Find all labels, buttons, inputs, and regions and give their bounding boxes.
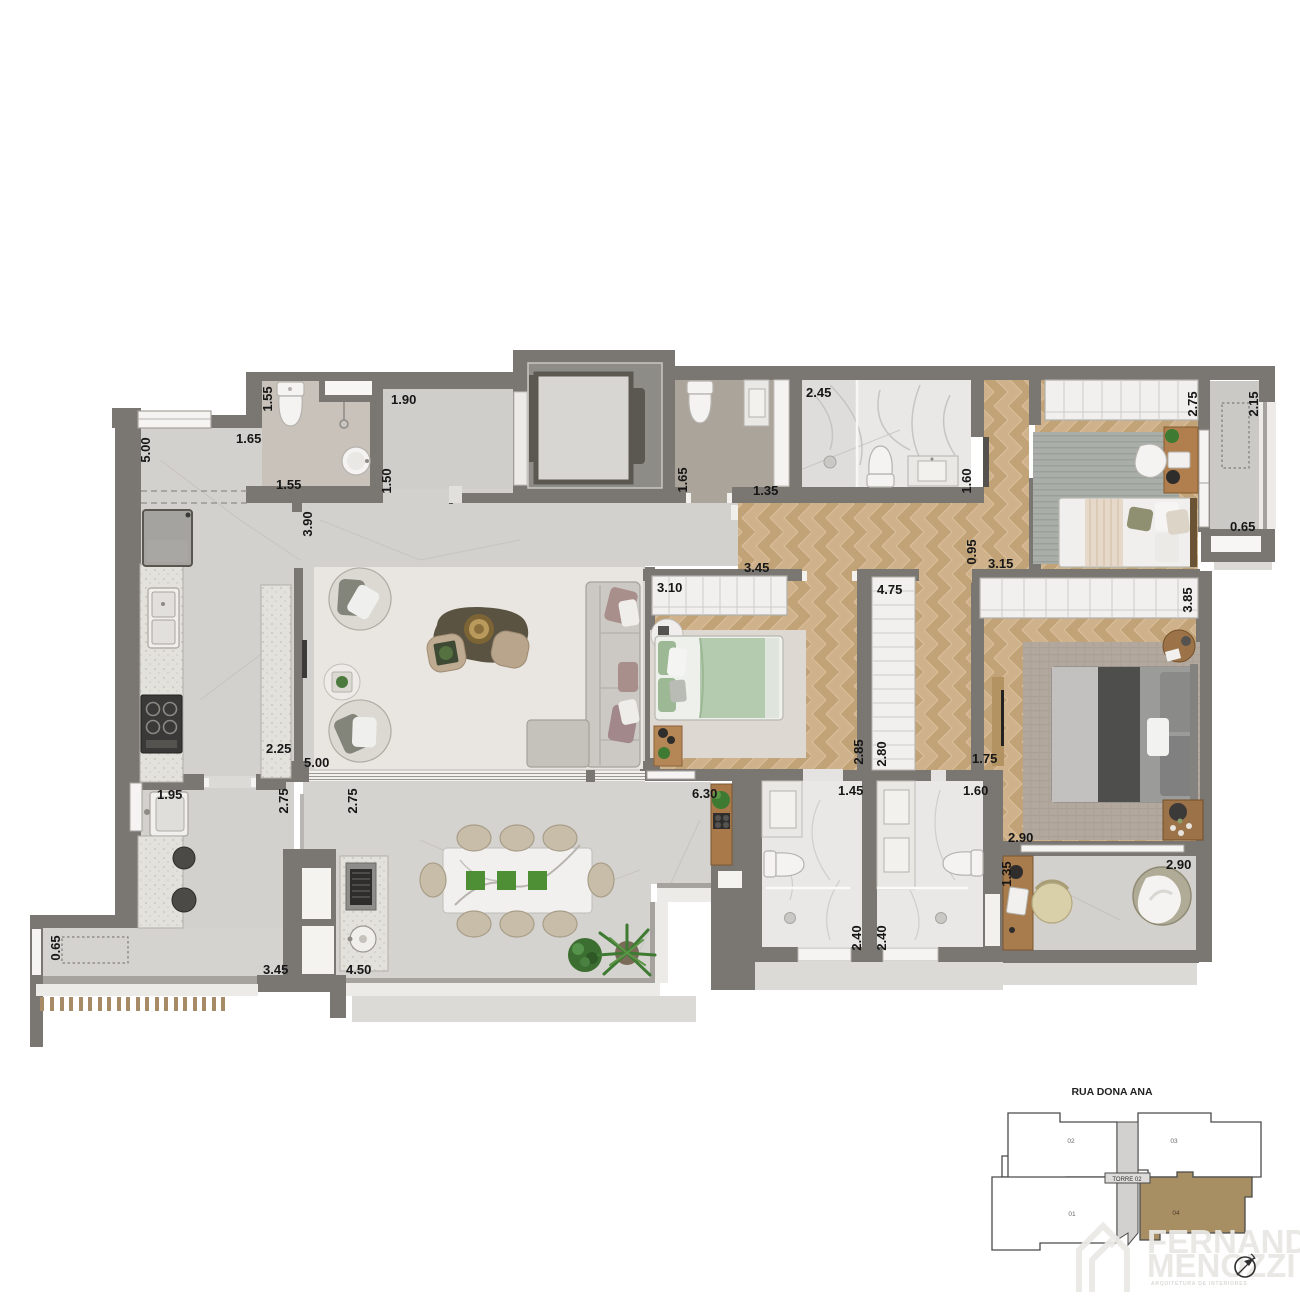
svg-text:0.95: 0.95 bbox=[964, 539, 979, 564]
svg-text:1.45: 1.45 bbox=[838, 783, 863, 798]
svg-text:RUA DONA ANA: RUA DONA ANA bbox=[1071, 1086, 1152, 1098]
svg-text:3.10: 3.10 bbox=[657, 580, 682, 595]
svg-text:1.50: 1.50 bbox=[379, 468, 394, 493]
svg-text:MENOZZI: MENOZZI bbox=[1147, 1247, 1295, 1284]
svg-text:2.45: 2.45 bbox=[806, 385, 831, 400]
svg-text:04: 04 bbox=[1172, 1210, 1180, 1217]
svg-text:1.60: 1.60 bbox=[959, 468, 974, 493]
svg-text:1.55: 1.55 bbox=[260, 386, 275, 411]
svg-text:2.90: 2.90 bbox=[1166, 857, 1191, 872]
svg-text:4.50: 4.50 bbox=[346, 962, 371, 977]
svg-text:2.90: 2.90 bbox=[1008, 830, 1033, 845]
svg-text:02: 02 bbox=[1067, 1138, 1075, 1145]
svg-text:2.15: 2.15 bbox=[1246, 391, 1261, 416]
svg-text:2.40: 2.40 bbox=[874, 925, 889, 950]
svg-text:1.55: 1.55 bbox=[276, 477, 301, 492]
svg-text:2.75: 2.75 bbox=[1185, 391, 1200, 416]
svg-text:1.95: 1.95 bbox=[157, 787, 182, 802]
svg-text:1.60: 1.60 bbox=[963, 783, 988, 798]
svg-text:3.45: 3.45 bbox=[744, 560, 769, 575]
svg-text:03: 03 bbox=[1170, 1138, 1178, 1145]
svg-text:2.75: 2.75 bbox=[345, 788, 360, 813]
svg-text:6.30: 6.30 bbox=[692, 786, 717, 801]
svg-text:3.15: 3.15 bbox=[988, 556, 1013, 571]
svg-text:3.45: 3.45 bbox=[263, 962, 288, 977]
svg-text:1.65: 1.65 bbox=[236, 431, 261, 446]
svg-text:2.85: 2.85 bbox=[851, 739, 866, 764]
svg-text:1.90: 1.90 bbox=[391, 392, 416, 407]
svg-text:2.75: 2.75 bbox=[276, 788, 291, 813]
svg-text:2.25: 2.25 bbox=[266, 741, 291, 756]
svg-text:2.40: 2.40 bbox=[849, 925, 864, 950]
svg-text:TORRE 02: TORRE 02 bbox=[1112, 1177, 1142, 1183]
svg-text:1.65: 1.65 bbox=[675, 467, 690, 492]
svg-text:2.80: 2.80 bbox=[874, 741, 889, 766]
svg-text:0.65: 0.65 bbox=[48, 935, 63, 960]
svg-text:3.85: 3.85 bbox=[1180, 587, 1195, 612]
svg-text:3.90: 3.90 bbox=[300, 511, 315, 536]
svg-text:01: 01 bbox=[1068, 1211, 1076, 1218]
svg-text:ARQUITETURA DE INTERIORES: ARQUITETURA DE INTERIORES bbox=[1151, 1281, 1247, 1287]
svg-text:4.75: 4.75 bbox=[877, 582, 902, 597]
svg-text:5.00: 5.00 bbox=[304, 755, 329, 770]
svg-text:5.00: 5.00 bbox=[138, 437, 153, 462]
svg-text:1.35: 1.35 bbox=[753, 483, 778, 498]
svg-text:0.65: 0.65 bbox=[1230, 519, 1255, 534]
svg-text:1.75: 1.75 bbox=[972, 751, 997, 766]
svg-text:1.35: 1.35 bbox=[999, 861, 1014, 886]
